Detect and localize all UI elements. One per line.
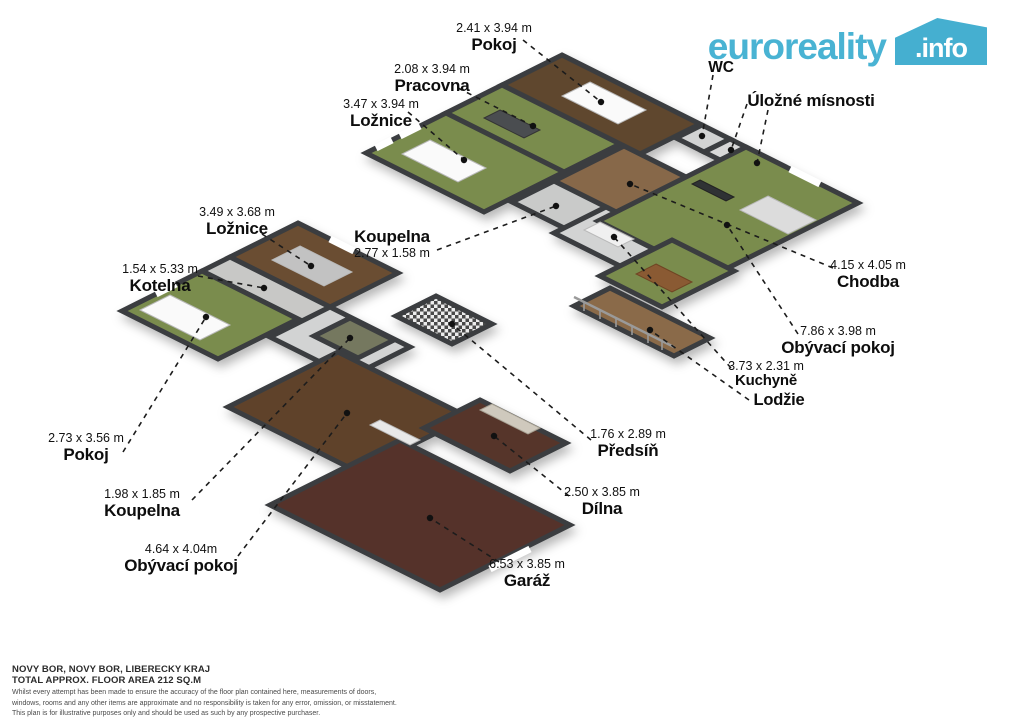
room-name: Garáž [489,571,565,590]
floorplan-stage: 2.41 x 3.94 mPokoj2.08 x 3.94 mPracovna3… [0,0,1024,724]
room-name: Pracovna [394,76,470,95]
footer-location: NOVY BOR, NOVY BOR, LIBERECKY KRAJ [12,664,397,675]
room-dimensions: 3.47 x 3.94 m [343,97,419,111]
room-dimensions: 2.77 x 1.58 m [354,246,430,260]
room-label-pokoj-lower: 2.73 x 3.56 mPokoj [48,431,124,464]
room-name: Obývací pokoj [124,556,238,575]
footer-disclaimer: Whilst every attempt has been made to en… [12,688,397,718]
room-label-kotelna: 1.54 x 5.33 mKotelna [122,262,198,295]
room-name: Pokoj [456,35,532,54]
room-name: Dílna [564,499,640,518]
room-dimensions: 1.54 x 5.33 m [122,262,198,276]
room-name: Předsíň [590,441,666,460]
footer-disclaimer-line2: windows, rooms and any other items are a… [12,699,397,709]
room-label-loznice-upper: 3.47 x 3.94 mLožnice [343,97,419,130]
room-label-ulozne-misnosti: Úložné mísnosti [747,91,874,110]
room-label-dilna: 2.50 x 3.85 mDílna [564,485,640,518]
room-name: Koupelna [354,227,430,246]
logo-tld-text: .info [915,35,967,65]
room-label-koupelna-lower: 1.98 x 1.85 mKoupelna [104,487,180,520]
room-name: Kuchyně [728,373,804,390]
euroreality-logo: euroreality .info [708,18,987,65]
room-name: Obývací pokoj [781,338,895,357]
room-label-koupelna-upper: Koupelna2.77 x 1.58 m [354,227,430,260]
room-name: Chodba [830,272,906,291]
room-label-obyvaci-pokoj-lower: 4.64 x 4.04mObývací pokoj [124,542,238,575]
room-label-garaz: 6.53 x 3.85 mGaráž [489,557,565,590]
footer-disclaimer-line3: This plan is for illustrative purposes o… [12,709,397,719]
room-label-predsin: 1.76 x 2.89 mPředsíň [590,427,666,460]
room-label-kuchyne: 3.73 x 2.31 mKuchyně [728,359,804,390]
room-dimensions: 1.76 x 2.89 m [590,427,666,441]
room-dimensions: 2.50 x 3.85 m [564,485,640,499]
room-dimensions: 2.73 x 3.56 m [48,431,124,445]
room-dimensions: 3.49 x 3.68 m [199,205,275,219]
room-label-pracovna: 2.08 x 3.94 mPracovna [394,62,470,95]
room-dimensions: 7.86 x 3.98 m [781,324,895,338]
room-name: Koupelna [104,501,180,520]
footer-disclaimer-line1: Whilst every attempt has been made to en… [12,688,397,698]
room-label-lodzie: Lodžie [753,391,804,409]
room-dimensions: 1.98 x 1.85 m [104,487,180,501]
footer: NOVY BOR, NOVY BOR, LIBERECKY KRAJ TOTAL… [12,664,397,719]
room-predsin [396,296,492,344]
room-label-obyvaci-pokoj-upper: 7.86 x 3.98 mObývací pokoj [781,324,895,357]
room-name: Ložnice [199,219,275,238]
room-name: Pokoj [48,445,124,464]
logo-brand-text: euroreality [708,30,886,65]
room-dimensions: 2.41 x 3.94 m [456,21,532,35]
room-dimensions: 4.15 x 4.05 m [830,258,906,272]
room-dimensions: 4.64 x 4.04m [124,542,238,556]
logo-house-badge-icon: .info [895,18,987,65]
room-label-pokoj-upper: 2.41 x 3.94 mPokoj [456,21,532,54]
room-name: Lodžie [753,391,804,409]
room-name: Ložnice [343,111,419,130]
room-name: Kotelna [122,276,198,295]
room-dimensions: 2.08 x 3.94 m [394,62,470,76]
room-name: Úložné mísnosti [747,91,874,110]
room-label-chodba: 4.15 x 4.05 mChodba [830,258,906,291]
footer-area: TOTAL APPROX. FLOOR AREA 212 SQ.M [12,675,397,686]
room-dimensions: 6.53 x 3.85 m [489,557,565,571]
room-label-loznice-lower: 3.49 x 3.68 mLožnice [199,205,275,238]
room-dimensions: 3.73 x 2.31 m [728,359,804,373]
